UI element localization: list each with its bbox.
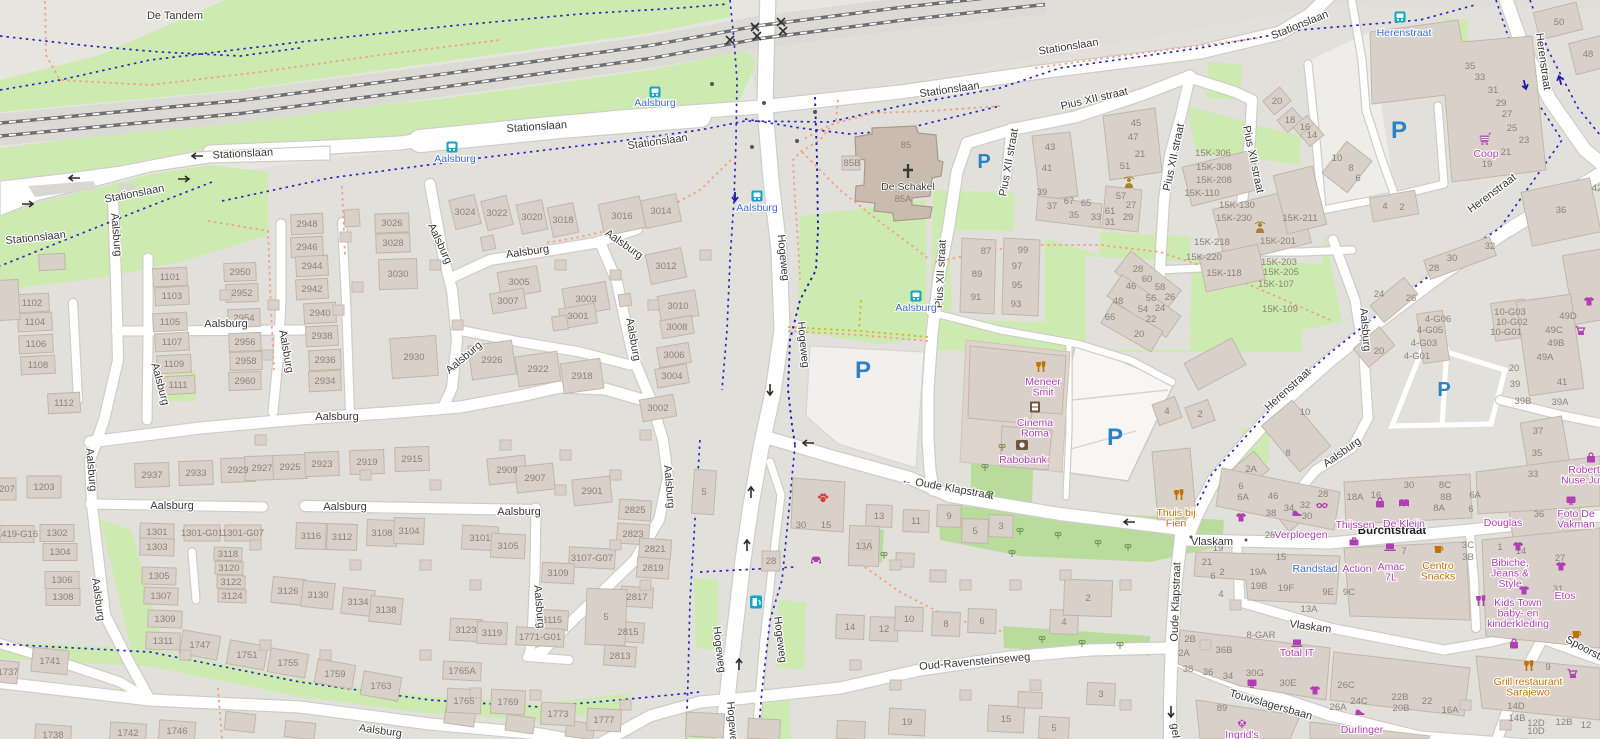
svg-text:Sarajewo: Sarajewo <box>1506 687 1550 699</box>
svg-text:2925: 2925 <box>279 462 300 473</box>
svg-text:15K-230: 15K-230 <box>1216 213 1252 224</box>
svg-text:46: 46 <box>1268 491 1279 502</box>
svg-text:11: 11 <box>911 516 921 527</box>
svg-text:15K-208: 15K-208 <box>1196 175 1232 186</box>
svg-text:De Tandem: De Tandem <box>147 10 203 22</box>
svg-text:Aalsburg: Aalsburg <box>497 506 540 518</box>
svg-text:66: 66 <box>1105 312 1116 323</box>
svg-text:3118: 3118 <box>218 549 238 560</box>
svg-text:3B: 3B <box>1462 552 1474 563</box>
svg-text:49B: 49B <box>1548 338 1565 349</box>
svg-text:3126: 3126 <box>277 586 298 597</box>
svg-text:15K-130: 15K-130 <box>1219 200 1255 211</box>
svg-text:3123: 3123 <box>455 625 476 636</box>
svg-text:13A: 13A <box>856 541 874 552</box>
svg-text:3018: 3018 <box>552 215 573 226</box>
svg-text:1105: 1105 <box>160 317 180 328</box>
svg-text:18A: 18A <box>1347 492 1365 503</box>
svg-text:De Kleijn: De Kleijn <box>1383 518 1425 530</box>
svg-text:1742: 1742 <box>117 728 138 739</box>
svg-text:14: 14 <box>845 622 856 633</box>
svg-text:58: 58 <box>1155 282 1166 293</box>
svg-text:Vlaskam: Vlaskam <box>1191 536 1233 548</box>
svg-text:2927: 2927 <box>251 463 272 474</box>
svg-text:15K-211: 15K-211 <box>1282 213 1317 224</box>
svg-text:18: 18 <box>1285 115 1296 126</box>
svg-text:15K-218: 15K-218 <box>1194 237 1230 248</box>
svg-text:3002: 3002 <box>647 403 668 414</box>
svg-text:25: 25 <box>1507 123 1518 134</box>
svg-text:Aalsburg: Aalsburg <box>634 97 676 109</box>
svg-text:2948: 2948 <box>296 219 317 230</box>
svg-text:30: 30 <box>1302 511 1313 522</box>
svg-text:3016: 3016 <box>611 211 632 222</box>
svg-text:15K-205: 15K-205 <box>1263 267 1299 278</box>
svg-text:2815: 2815 <box>617 627 638 638</box>
svg-text:Aalsburg: Aalsburg <box>323 501 366 513</box>
svg-text:15K-110: 15K-110 <box>1184 188 1219 199</box>
svg-text:2934: 2934 <box>314 376 335 387</box>
svg-text:1301: 1301 <box>146 527 167 538</box>
svg-text:2930: 2930 <box>403 352 424 363</box>
svg-text:1302: 1302 <box>46 528 67 539</box>
svg-text:2915: 2915 <box>401 454 422 465</box>
svg-text:21: 21 <box>1135 149 1146 160</box>
svg-text:1: 1 <box>1497 542 1502 553</box>
svg-text:20: 20 <box>1509 363 1520 374</box>
svg-text:26: 26 <box>1165 292 1176 303</box>
svg-text:1765: 1765 <box>453 696 474 707</box>
svg-text:Aalsburg: Aalsburg <box>736 202 778 214</box>
svg-text:2909: 2909 <box>496 465 517 476</box>
svg-text:3134: 3134 <box>347 597 368 608</box>
svg-text:36B: 36B <box>1216 645 1233 656</box>
svg-text:2937: 2937 <box>141 470 162 481</box>
svg-text:15K-201: 15K-201 <box>1260 236 1296 247</box>
svg-text:P: P <box>977 151 990 173</box>
svg-text:19: 19 <box>1482 159 1493 170</box>
svg-text:Aalsburg: Aalsburg <box>204 318 247 330</box>
svg-text:12: 12 <box>879 624 890 635</box>
svg-text:10: 10 <box>1300 407 1311 418</box>
svg-text:60: 60 <box>1142 274 1153 285</box>
svg-text:16: 16 <box>1371 490 1382 501</box>
svg-text:19: 19 <box>902 717 913 728</box>
svg-text:10: 10 <box>1332 153 1343 164</box>
svg-text:16A: 16A <box>1442 705 1460 716</box>
svg-text:Rabobank: Rabobank <box>999 454 1048 466</box>
svg-text:35: 35 <box>1069 210 1080 221</box>
svg-text:65: 65 <box>1081 198 1092 209</box>
svg-text:46: 46 <box>1126 281 1137 292</box>
svg-text:P: P <box>1391 117 1407 144</box>
svg-text:5: 5 <box>972 526 977 537</box>
svg-text:39: 39 <box>1037 187 1048 198</box>
svg-text:3105: 3105 <box>497 541 518 552</box>
svg-text:3028: 3028 <box>382 238 403 249</box>
svg-text:3: 3 <box>998 521 1003 532</box>
svg-text:26A: 26A <box>1330 702 1348 713</box>
svg-text:3107-G07: 3107-G07 <box>571 553 613 564</box>
svg-text:2819: 2819 <box>642 563 663 574</box>
svg-text:85: 85 <box>901 140 912 151</box>
svg-text:Vakman: Vakman <box>1557 519 1595 531</box>
svg-text:39A: 39A <box>1552 397 1570 408</box>
svg-text:1112: 1112 <box>54 398 74 409</box>
svg-text:Verploegen: Verploegen <box>1274 529 1327 541</box>
svg-text:37: 37 <box>1533 426 1544 437</box>
svg-text:Total IT: Total IT <box>1280 647 1315 659</box>
svg-text:5: 5 <box>603 612 608 623</box>
svg-text:3006: 3006 <box>663 350 684 361</box>
svg-text:1109: 1109 <box>164 359 184 370</box>
svg-text:28: 28 <box>1318 489 1329 500</box>
svg-text:3012: 3012 <box>655 261 676 272</box>
svg-text:6A: 6A <box>1237 492 1249 503</box>
svg-text:22: 22 <box>1422 696 1433 707</box>
svg-text:13: 13 <box>874 511 885 522</box>
svg-text:4: 4 <box>1382 201 1387 212</box>
svg-text:1738: 1738 <box>42 730 63 739</box>
svg-text:1104: 1104 <box>25 317 45 328</box>
svg-text:41: 41 <box>1557 377 1568 388</box>
svg-text:2940: 2940 <box>309 308 330 319</box>
svg-text:2: 2 <box>1399 202 1404 213</box>
svg-text:49D: 49D <box>1559 311 1577 322</box>
svg-text:2817: 2817 <box>626 592 647 603</box>
svg-text:1106: 1106 <box>26 339 46 350</box>
svg-text:1751: 1751 <box>236 650 257 661</box>
svg-text:20: 20 <box>1374 346 1385 357</box>
svg-text:8: 8 <box>1285 448 1290 459</box>
svg-text:2950: 2950 <box>229 267 250 278</box>
svg-text:Ingrid's: Ingrid's <box>1225 729 1259 739</box>
svg-text:3014: 3014 <box>650 206 671 217</box>
svg-text:20: 20 <box>1272 96 1283 107</box>
svg-text:22: 22 <box>1146 314 1157 325</box>
svg-text:2918: 2918 <box>571 371 592 382</box>
svg-text:9C: 9C <box>1343 587 1355 598</box>
svg-text:7L: 7L <box>1385 572 1397 584</box>
svg-text:8A: 8A <box>1433 503 1445 514</box>
svg-text:1107: 1107 <box>162 337 182 348</box>
svg-text:1304: 1304 <box>49 547 70 558</box>
svg-text:27: 27 <box>1126 200 1137 211</box>
svg-text:Amac: Amac <box>1378 561 1405 573</box>
svg-text:1303: 1303 <box>146 542 167 553</box>
svg-text:Aalsburg: Aalsburg <box>150 500 193 512</box>
svg-text:9: 9 <box>946 511 951 522</box>
svg-text:33: 33 <box>1091 212 1102 223</box>
svg-text:14D: 14D <box>1507 701 1525 712</box>
svg-text:8B: 8B <box>1440 492 1452 503</box>
svg-text:Thijssen: Thijssen <box>1335 519 1374 531</box>
svg-text:2929: 2929 <box>227 465 248 476</box>
svg-text:21: 21 <box>1501 147 1512 158</box>
svg-text:26C: 26C <box>1337 680 1355 691</box>
svg-text:Action: Action <box>1342 563 1371 575</box>
svg-text:2946: 2946 <box>296 242 317 253</box>
svg-text:2926: 2926 <box>481 355 502 366</box>
svg-text:3138: 3138 <box>375 605 396 616</box>
svg-text:89: 89 <box>972 269 983 280</box>
svg-text:35: 35 <box>1465 61 1476 72</box>
svg-text:2956: 2956 <box>234 337 255 348</box>
svg-text:3112: 3112 <box>332 532 352 543</box>
svg-text:2958: 2958 <box>235 356 256 367</box>
svg-text:24C: 24C <box>1350 696 1368 707</box>
svg-text:6: 6 <box>1210 571 1215 582</box>
svg-text:13A: 13A <box>1301 604 1319 615</box>
svg-text:30: 30 <box>796 520 807 531</box>
svg-text:2813: 2813 <box>609 651 630 662</box>
svg-text:1307: 1307 <box>150 591 171 602</box>
svg-text:1737: 1737 <box>0 667 19 678</box>
svg-text:8: 8 <box>943 619 948 630</box>
svg-text:30G: 30G <box>1246 668 1264 679</box>
svg-text:8: 8 <box>1348 163 1353 174</box>
svg-text:4-G05: 4-G05 <box>1417 325 1443 336</box>
svg-text:19F: 19F <box>1278 583 1295 594</box>
svg-text:1765A: 1765A <box>448 666 476 677</box>
svg-text:2: 2 <box>1085 593 1090 604</box>
svg-text:48: 48 <box>1583 49 1594 60</box>
svg-text:39: 39 <box>1510 379 1521 390</box>
svg-text:1102: 1102 <box>22 298 42 309</box>
svg-text:P: P <box>1107 424 1123 451</box>
svg-text:12: 12 <box>1581 720 1592 731</box>
svg-text:4: 4 <box>1218 589 1223 600</box>
svg-text:2960: 2960 <box>234 376 255 387</box>
svg-text:2952: 2952 <box>231 288 252 299</box>
svg-text:1103: 1103 <box>162 291 182 302</box>
svg-text:1301-G07: 1301-G07 <box>222 528 264 539</box>
svg-text:1746: 1746 <box>166 726 187 737</box>
svg-text:9: 9 <box>1545 662 1550 673</box>
svg-text:15K-308: 15K-308 <box>1196 162 1232 173</box>
svg-text:3122: 3122 <box>220 577 241 588</box>
svg-text:15K-220: 15K-220 <box>1186 252 1222 263</box>
svg-text:3030: 3030 <box>387 269 408 280</box>
svg-text:42: 42 <box>1592 183 1600 194</box>
svg-text:8C: 8C <box>1439 480 1451 491</box>
svg-text:3008: 3008 <box>666 322 687 333</box>
svg-text:61: 61 <box>1105 206 1116 217</box>
svg-text:34: 34 <box>1223 671 1234 682</box>
svg-text:3026: 3026 <box>381 218 402 229</box>
svg-text:36: 36 <box>1203 667 1214 678</box>
svg-text:2901: 2901 <box>581 486 602 497</box>
svg-text:7: 7 <box>1401 546 1406 557</box>
svg-text:P: P <box>855 357 871 384</box>
svg-text:15: 15 <box>821 520 832 531</box>
svg-text:27: 27 <box>1502 109 1513 120</box>
svg-text:3020: 3020 <box>521 212 542 223</box>
svg-text:28: 28 <box>766 556 777 567</box>
svg-text:4-G06: 4-G06 <box>1425 314 1451 325</box>
svg-text:2B: 2B <box>1184 634 1196 645</box>
svg-text:49C: 49C <box>1545 325 1563 336</box>
svg-text:93: 93 <box>1011 299 1022 310</box>
svg-text:15: 15 <box>1001 714 1012 725</box>
svg-text:9E: 9E <box>1322 587 1334 598</box>
svg-text:1771-G01: 1771-G01 <box>519 632 561 643</box>
svg-text:6: 6 <box>1468 504 1473 515</box>
svg-text:gel: gel <box>1168 723 1181 739</box>
svg-text:12B: 12B <box>1556 717 1573 728</box>
svg-text:24: 24 <box>1374 289 1385 300</box>
svg-text:3108: 3108 <box>371 528 392 539</box>
svg-text:Etos: Etos <box>1554 590 1575 602</box>
svg-text:15K-306: 15K-306 <box>1195 148 1231 159</box>
svg-text:4: 4 <box>1164 406 1169 417</box>
svg-text:Randstad: Randstad <box>1293 563 1338 575</box>
svg-text:91: 91 <box>971 292 982 303</box>
svg-text:Style: Style <box>1498 578 1522 590</box>
svg-text:2A: 2A <box>1178 648 1190 659</box>
svg-text:2A: 2A <box>1245 464 1257 475</box>
svg-text:50: 50 <box>1554 17 1565 28</box>
svg-text:30E: 30E <box>1280 678 1297 689</box>
svg-text:36: 36 <box>1556 205 1567 216</box>
svg-text:1203: 1203 <box>33 482 54 493</box>
svg-text:3005: 3005 <box>508 277 529 288</box>
svg-text:1305: 1305 <box>148 571 169 582</box>
svg-text:2907: 2907 <box>524 473 545 484</box>
svg-text:23: 23 <box>1519 135 1530 146</box>
svg-text:3130: 3130 <box>307 590 328 601</box>
svg-text:89: 89 <box>1217 703 1228 714</box>
svg-text:1763: 1763 <box>370 681 391 692</box>
svg-text:97: 97 <box>1012 261 1023 272</box>
svg-text:De Schakel: De Schakel <box>881 181 935 193</box>
svg-text:51: 51 <box>1120 161 1131 172</box>
svg-text:Fien: Fien <box>1166 518 1187 530</box>
svg-text:3C: 3C <box>1462 540 1474 551</box>
svg-text:6A: 6A <box>1469 490 1481 501</box>
svg-text:30: 30 <box>1447 253 1458 264</box>
svg-text:Coop: Coop <box>1473 148 1498 160</box>
svg-text:1755: 1755 <box>277 658 298 669</box>
svg-text:31: 31 <box>1105 217 1116 228</box>
svg-text:15: 15 <box>1276 552 1287 563</box>
svg-text:Nuse Juw: Nuse Juw <box>1561 475 1600 487</box>
svg-text:3124: 3124 <box>221 591 242 602</box>
svg-text:1309: 1309 <box>154 614 175 625</box>
svg-text:3119: 3119 <box>482 628 502 639</box>
svg-text:2944: 2944 <box>301 261 322 272</box>
svg-text:37: 37 <box>1047 201 1058 212</box>
svg-text:85A: 85A <box>895 194 913 205</box>
svg-text:47: 47 <box>1128 132 1139 143</box>
svg-text:5: 5 <box>701 487 706 498</box>
svg-text:14: 14 <box>1307 130 1318 141</box>
svg-text:8-GAR: 8-GAR <box>1246 630 1275 641</box>
svg-text:39B: 39B <box>1515 396 1532 407</box>
svg-text:29: 29 <box>1496 98 1507 109</box>
svg-text:95: 95 <box>1012 280 1023 291</box>
svg-text:kinderkleding: kinderkleding <box>1487 618 1549 630</box>
svg-text:3007: 3007 <box>497 296 518 307</box>
svg-text:10: 10 <box>904 614 915 625</box>
svg-text:1741: 1741 <box>39 656 60 667</box>
svg-text:20: 20 <box>1134 329 1145 340</box>
svg-text:3010: 3010 <box>667 301 688 312</box>
svg-text:2825: 2825 <box>624 505 645 516</box>
svg-text:Aalsburg: Aalsburg <box>315 411 358 423</box>
svg-text:26: 26 <box>1406 293 1417 304</box>
svg-text:3104: 3104 <box>398 526 419 537</box>
svg-text:1101: 1101 <box>160 272 180 283</box>
svg-text:24: 24 <box>1155 303 1166 314</box>
svg-text:Snacks: Snacks <box>1421 571 1455 583</box>
svg-text:3101: 3101 <box>469 533 490 544</box>
svg-text:1759: 1759 <box>324 669 345 680</box>
svg-text:32: 32 <box>1485 241 1496 252</box>
svg-text:29: 29 <box>1123 212 1134 223</box>
svg-text:6: 6 <box>1355 173 1360 184</box>
svg-text:2942: 2942 <box>301 284 322 295</box>
svg-text:31: 31 <box>1488 85 1499 96</box>
svg-text:41: 41 <box>1042 163 1053 174</box>
svg-text:10-G01: 10-G01 <box>1490 327 1522 338</box>
svg-text:45: 45 <box>1131 118 1142 129</box>
svg-text:19B: 19B <box>1251 581 1268 592</box>
svg-text:2823: 2823 <box>622 529 643 540</box>
svg-text:Douglas: Douglas <box>1484 517 1523 529</box>
svg-text:2933: 2933 <box>185 468 206 479</box>
svg-text:3022: 3022 <box>486 208 507 219</box>
svg-text:5: 5 <box>1051 723 1056 734</box>
svg-text:21: 21 <box>1202 557 1213 568</box>
svg-text:22B: 22B <box>1392 692 1409 703</box>
svg-text:2: 2 <box>1219 567 1224 578</box>
svg-text:4-G01: 4-G01 <box>1404 351 1430 362</box>
svg-text:20B: 20B <box>1393 703 1410 714</box>
svg-text:4: 4 <box>1061 617 1066 628</box>
svg-text:49A: 49A <box>1537 352 1555 363</box>
svg-text:1311: 1311 <box>153 636 173 647</box>
svg-text:2923: 2923 <box>311 459 332 470</box>
svg-text:15K-118: 15K-118 <box>1206 268 1241 279</box>
svg-text:2936: 2936 <box>314 355 335 366</box>
svg-text:1301-G01: 1301-G01 <box>181 528 223 539</box>
svg-text:P: P <box>1437 379 1450 401</box>
svg-text:Durlinger: Durlinger <box>1341 724 1384 736</box>
svg-text:1306: 1306 <box>51 575 72 586</box>
svg-text:38: 38 <box>1266 508 1277 519</box>
svg-text:1769: 1769 <box>497 697 518 708</box>
svg-text:1747: 1747 <box>189 640 210 651</box>
svg-text:2938: 2938 <box>311 331 332 342</box>
svg-text:2821: 2821 <box>644 544 665 555</box>
svg-text:1308: 1308 <box>52 592 73 603</box>
svg-text:36: 36 <box>1534 509 1545 520</box>
svg-text:35: 35 <box>1532 448 1543 459</box>
svg-text:Smit: Smit <box>1033 387 1054 399</box>
svg-text:14B: 14B <box>1509 713 1526 724</box>
svg-text:10D: 10D <box>1527 726 1545 737</box>
svg-text:Aalsburg: Aalsburg <box>895 302 937 314</box>
svg-text:4-G03: 4-G03 <box>1411 338 1437 349</box>
svg-text:2922: 2922 <box>527 364 548 375</box>
svg-text:3024: 3024 <box>454 207 475 218</box>
svg-text:207: 207 <box>0 484 15 495</box>
svg-text:1111: 1111 <box>168 380 187 391</box>
svg-text:67: 67 <box>1064 196 1075 207</box>
svg-text:3: 3 <box>1098 689 1103 700</box>
svg-text:43: 43 <box>1045 142 1056 153</box>
